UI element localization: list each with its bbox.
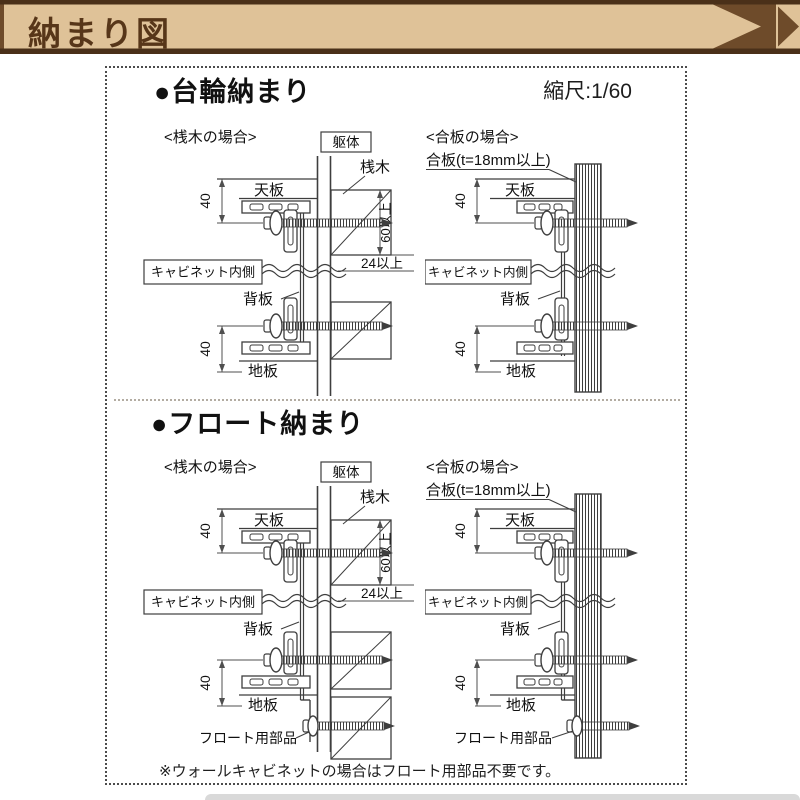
case-label: <桟木の場合> — [164, 129, 257, 146]
case-label: <桟木の場合> — [164, 459, 257, 476]
diagram-float-batten: 躯体桟木60以上24以上<桟木の場合>天板40キャビネット内側背板地板40フロー… — [132, 450, 422, 767]
section-heading-float: ●フロート納まり — [151, 402, 364, 441]
label-cabinet-inside: キャビネット内側 — [428, 596, 528, 610]
label-cabinet-inside: キャビネット内側 — [151, 595, 255, 610]
diagram-daiwa-batten: 躯体桟木60以上24以上<桟木の場合>天板40キャビネット内側背板地板40 — [132, 120, 422, 407]
dim-40-top: 40 — [197, 193, 213, 209]
label-cabinet-inside: キャビネット内側 — [151, 265, 255, 280]
section-divider — [114, 399, 680, 401]
dim-24-plus: 24以上 — [361, 256, 403, 271]
dim-40-bottom: 40 — [452, 341, 468, 357]
label-batten: 桟木 — [360, 159, 390, 176]
dim-40-bottom: 40 — [197, 675, 213, 691]
label-top-panel: 天板 — [254, 511, 284, 529]
case-label: <合板の場合> — [426, 128, 519, 146]
diagram-canvas: 合板(t=18mm以上)<合板の場合>天板40キャビネット内側背板地板40フロー… — [425, 450, 675, 762]
diagram-canvas: 躯体桟木60以上24以上<桟木の場合>天板40キャビネット内側背板地板40フロー… — [132, 450, 422, 762]
diagram-panel: ●台輪納まり 縮尺:1/60 躯体桟木60以上24以上<桟木の場合>天板40キャ… — [105, 66, 687, 785]
label-back-panel: 背板 — [500, 620, 530, 638]
next-section-edge — [205, 794, 800, 800]
scale-label: 縮尺:1/60 — [543, 75, 632, 105]
diagram-canvas: 合板(t=18mm以上)<合板の場合>天板40キャビネット内側背板地板40 — [425, 120, 675, 402]
label-batten: 桟木 — [360, 489, 390, 506]
dim-40-bottom: 40 — [197, 341, 213, 357]
label-plywood: 合板(t=18mm以上) — [426, 481, 551, 499]
label-float-part: フロート用部品 — [454, 730, 552, 746]
section-title-banner: 納まり図 — [0, 0, 800, 54]
label-plywood: 合板(t=18mm以上) — [426, 151, 551, 169]
label-cabinet-inside: キャビネット内側 — [428, 266, 528, 280]
label-bottom-panel: 地板 — [506, 362, 536, 380]
label-frame-box: 躯体 — [333, 465, 360, 480]
label-bottom-panel: 地板 — [248, 696, 278, 714]
dim-24-plus: 24以上 — [361, 586, 403, 601]
label-back-panel: 背板 — [500, 290, 530, 308]
label-float-part: フロート用部品 — [199, 730, 297, 746]
label-back-panel: 背板 — [243, 290, 273, 308]
label-top-panel: 天板 — [505, 511, 535, 529]
label-top-panel: 天板 — [254, 181, 284, 199]
dim-40-top: 40 — [197, 523, 213, 539]
case-label: <合板の場合> — [426, 458, 519, 476]
label-bottom-panel: 地板 — [248, 362, 278, 380]
diagram-canvas: 躯体桟木60以上24以上<桟木の場合>天板40キャビネット内側背板地板40 — [132, 120, 422, 402]
label-frame-box: 躯体 — [333, 135, 360, 150]
footnote: ※ウォールキャビネットの場合はフロート用部品不要です。 — [159, 760, 560, 781]
section-heading-daiwa: ●台輪納まり — [154, 70, 311, 109]
dim-40-top: 40 — [452, 193, 468, 209]
dim-40-bottom: 40 — [452, 675, 468, 691]
diagram-float-plywood: 合板(t=18mm以上)<合板の場合>天板40キャビネット内側背板地板40フロー… — [425, 450, 675, 767]
page-background: 納まり図 ●台輪納まり 縮尺:1/60 躯体桟木60以上24以上<桟木の場合>天… — [0, 0, 800, 800]
page-title: 納まり図 — [28, 7, 172, 55]
label-top-panel: 天板 — [505, 181, 535, 199]
diagram-daiwa-plywood: 合板(t=18mm以上)<合板の場合>天板40キャビネット内側背板地板40 — [425, 120, 675, 407]
dim-40-top: 40 — [452, 523, 468, 539]
label-back-panel: 背板 — [243, 620, 273, 638]
label-bottom-panel: 地板 — [506, 696, 536, 714]
